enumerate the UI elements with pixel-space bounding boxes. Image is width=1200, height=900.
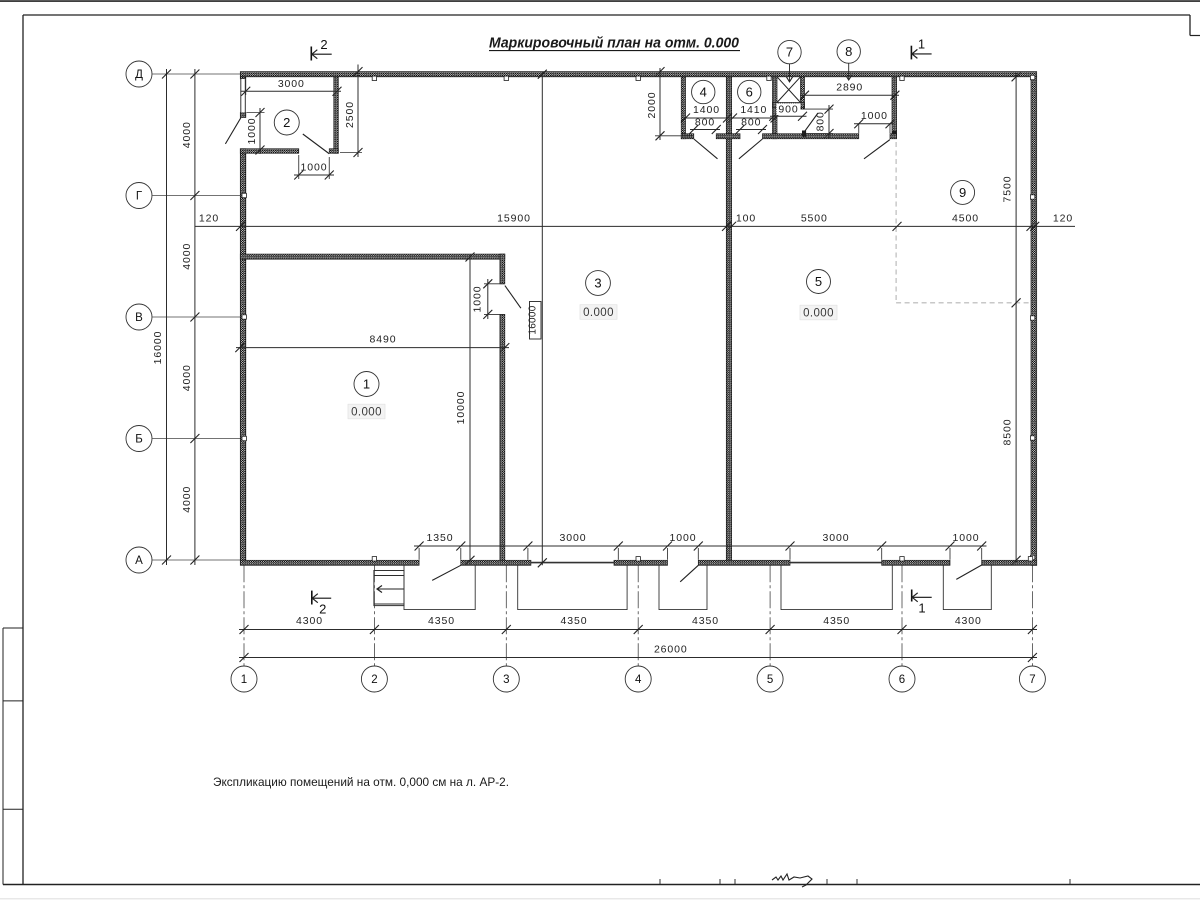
svg-text:1000: 1000	[670, 532, 697, 544]
svg-text:2000: 2000	[646, 92, 658, 119]
svg-text:Б: Б	[135, 434, 143, 446]
svg-text:2: 2	[320, 37, 327, 52]
svg-text:Маркировочный план на отм. 0.0: Маркировочный план на отм. 0.000	[489, 35, 740, 52]
svg-text:3000: 3000	[560, 532, 587, 544]
svg-text:3000: 3000	[823, 532, 850, 544]
svg-text:1: 1	[918, 37, 925, 52]
svg-text:120: 120	[199, 213, 219, 225]
svg-text:1350: 1350	[427, 532, 454, 544]
svg-text:0.000: 0.000	[351, 407, 382, 419]
svg-text:Д: Д	[135, 69, 143, 81]
svg-text:4000: 4000	[181, 486, 193, 513]
svg-text:3: 3	[503, 674, 509, 686]
svg-text:2890: 2890	[836, 81, 863, 93]
svg-text:10000: 10000	[455, 391, 467, 425]
svg-text:15900: 15900	[497, 213, 531, 225]
svg-text:5: 5	[767, 674, 773, 686]
svg-text:4350: 4350	[823, 615, 850, 627]
svg-text:4350: 4350	[561, 615, 588, 627]
svg-text:1000: 1000	[472, 286, 484, 313]
svg-text:100: 100	[736, 213, 756, 225]
svg-text:5500: 5500	[801, 213, 828, 225]
svg-text:2: 2	[319, 602, 326, 617]
svg-text:8: 8	[845, 44, 852, 59]
svg-text:16000: 16000	[152, 331, 164, 365]
svg-text:2: 2	[283, 115, 290, 130]
svg-text:1000: 1000	[301, 162, 328, 174]
svg-text:8490: 8490	[370, 333, 397, 345]
svg-text:4000: 4000	[181, 364, 193, 391]
svg-text:6: 6	[899, 674, 905, 686]
svg-text:Г: Г	[136, 191, 143, 203]
svg-text:5: 5	[815, 274, 822, 289]
svg-text:0.000: 0.000	[803, 308, 834, 320]
svg-text:4: 4	[700, 85, 707, 100]
svg-text:4300: 4300	[296, 615, 323, 627]
svg-text:1000: 1000	[861, 110, 888, 122]
svg-text:8500: 8500	[1002, 419, 1014, 446]
svg-text:0.000: 0.000	[583, 307, 614, 319]
svg-text:800: 800	[814, 111, 826, 131]
svg-text:1: 1	[363, 377, 370, 392]
svg-text:Экспликацию помещений на отм.: Экспликацию помещений на отм. 0,000 см н…	[213, 775, 509, 789]
svg-text:800: 800	[741, 117, 761, 129]
svg-text:800: 800	[695, 117, 715, 129]
svg-text:4350: 4350	[692, 615, 719, 627]
svg-text:3000: 3000	[278, 78, 305, 90]
svg-text:2: 2	[371, 674, 377, 686]
svg-text:4500: 4500	[952, 213, 979, 225]
svg-text:900: 900	[778, 104, 798, 116]
svg-text:7500: 7500	[1002, 176, 1014, 203]
svg-text:4350: 4350	[428, 615, 455, 627]
svg-text:7: 7	[1029, 674, 1035, 686]
svg-text:6: 6	[746, 85, 753, 100]
svg-text:2500: 2500	[344, 101, 356, 128]
svg-text:1000: 1000	[953, 532, 980, 544]
svg-text:4300: 4300	[955, 615, 982, 627]
svg-text:1: 1	[241, 674, 247, 686]
svg-text:В: В	[135, 312, 143, 324]
svg-text:1410: 1410	[740, 104, 767, 116]
svg-text:1: 1	[918, 601, 925, 616]
svg-text:4000: 4000	[181, 121, 193, 148]
svg-text:1400: 1400	[693, 104, 720, 116]
svg-text:120: 120	[1053, 213, 1073, 225]
svg-text:1000: 1000	[246, 118, 258, 145]
svg-text:4000: 4000	[181, 243, 193, 270]
svg-text:26000: 26000	[654, 643, 688, 655]
svg-text:А: А	[135, 555, 143, 567]
svg-text:9: 9	[959, 185, 966, 200]
svg-text:7: 7	[786, 45, 793, 60]
svg-text:3: 3	[594, 276, 601, 291]
svg-text:4: 4	[635, 674, 642, 686]
svg-text:16000: 16000	[527, 305, 538, 334]
